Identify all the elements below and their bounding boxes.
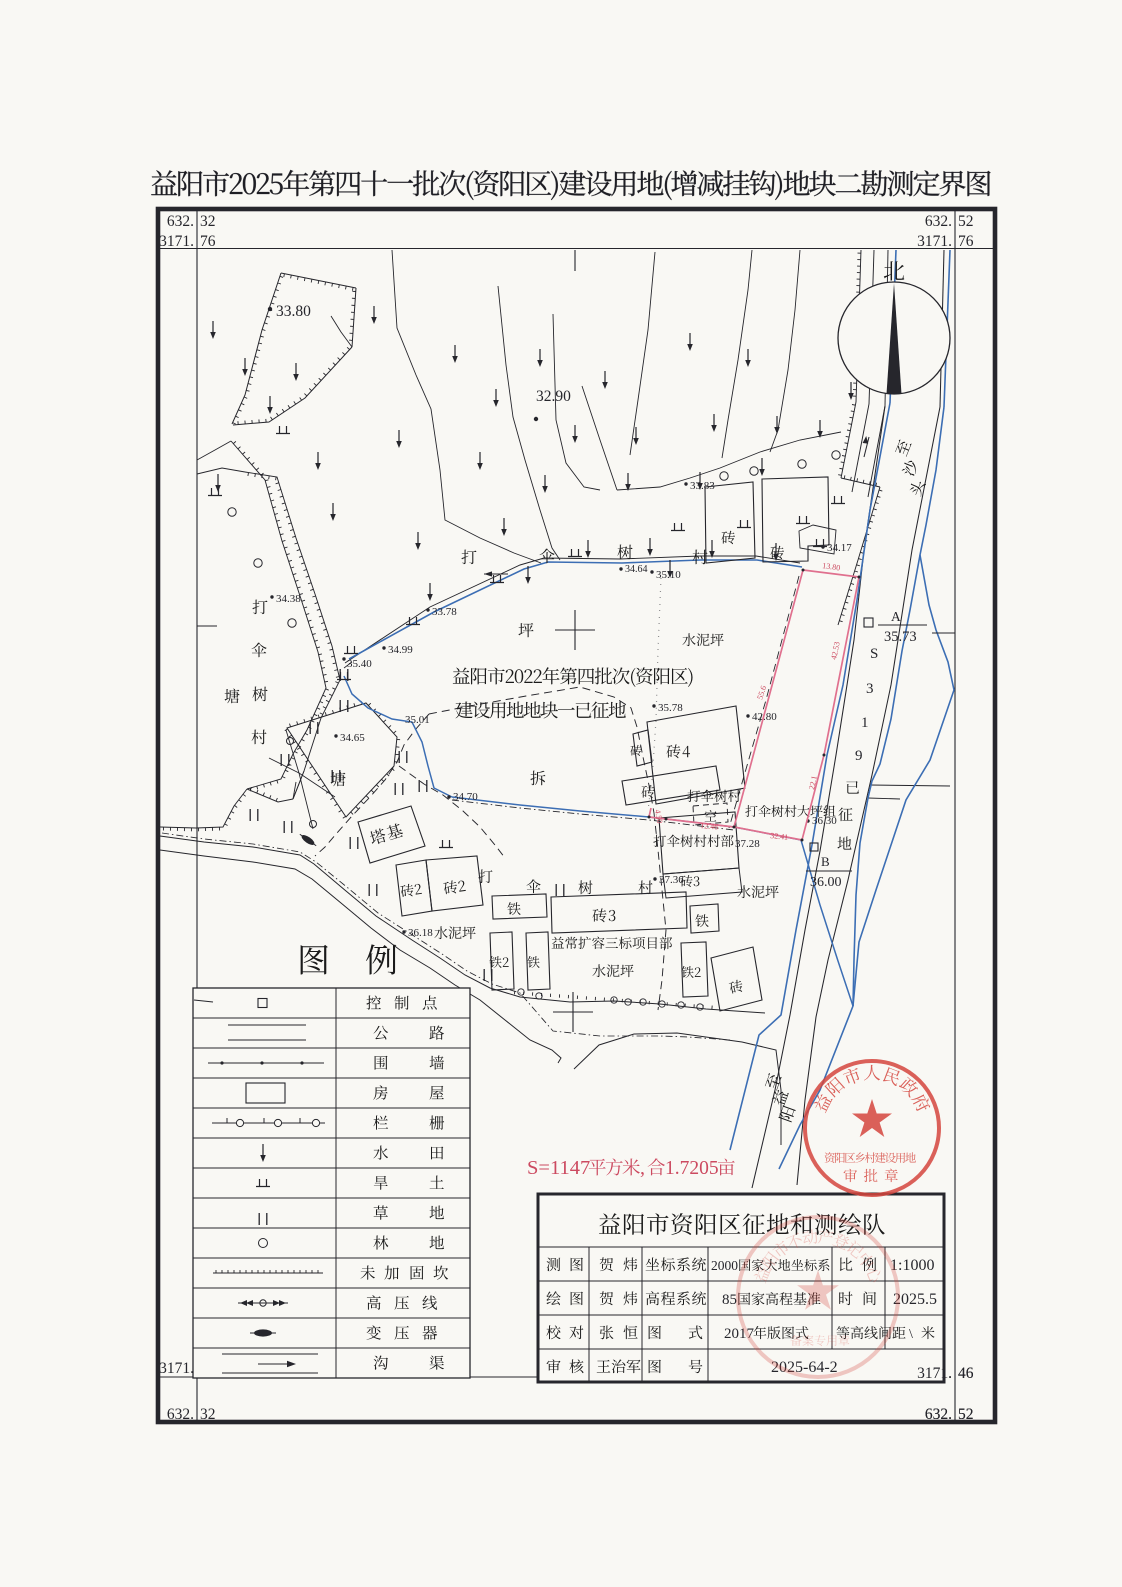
- svg-text:3171.: 3171.: [917, 1365, 952, 1382]
- svg-text:1: 1: [861, 715, 869, 731]
- svg-text:632.: 632.: [167, 213, 194, 230]
- svg-text:B: B: [821, 854, 830, 869]
- svg-text:35.40: 35.40: [347, 658, 372, 670]
- svg-text:33.78: 33.78: [432, 606, 457, 618]
- svg-text:46: 46: [958, 1365, 974, 1382]
- svg-text:3: 3: [866, 681, 874, 697]
- svg-text:34.70: 34.70: [453, 791, 478, 803]
- svg-text:632.: 632.: [925, 1406, 952, 1423]
- svg-text:34.38: 34.38: [276, 593, 301, 605]
- svg-text:35.10: 35.10: [656, 569, 681, 581]
- svg-text:32.90: 32.90: [536, 388, 571, 405]
- svg-text:A: A: [891, 609, 901, 624]
- svg-text:12.46: 12.46: [700, 821, 719, 832]
- svg-text:52: 52: [958, 1406, 974, 1423]
- svg-text:36.18: 36.18: [408, 927, 433, 939]
- svg-text:33.80: 33.80: [276, 303, 311, 320]
- svg-text:34.64: 34.64: [625, 564, 648, 575]
- svg-text:34.65: 34.65: [340, 732, 365, 744]
- svg-text:37.36: 37.36: [659, 874, 684, 886]
- svg-text:76: 76: [958, 233, 974, 250]
- svg-text:85: 85: [722, 1292, 737, 1308]
- svg-text:37.28: 37.28: [735, 838, 760, 850]
- svg-text:76: 76: [200, 233, 216, 250]
- svg-text:36.30: 36.30: [812, 815, 837, 827]
- svg-text:32: 32: [200, 213, 216, 230]
- svg-text:34.17: 34.17: [827, 542, 852, 554]
- svg-text:34.99: 34.99: [388, 644, 413, 656]
- svg-text:36.00: 36.00: [810, 875, 842, 890]
- svg-text:52: 52: [958, 213, 974, 230]
- svg-text:632.: 632.: [167, 1406, 194, 1423]
- svg-text:632.: 632.: [925, 213, 952, 230]
- svg-text:35.78: 35.78: [658, 702, 683, 714]
- svg-text:35.01: 35.01: [405, 714, 430, 726]
- svg-text:35.73: 35.73: [884, 629, 917, 645]
- svg-text:3171.: 3171.: [917, 233, 952, 250]
- svg-text:32.41: 32.41: [770, 831, 789, 842]
- svg-text:1:1000: 1:1000: [890, 1257, 934, 1274]
- svg-text:,: ,: [640, 1157, 645, 1179]
- svg-text:1.7205: 1.7205: [665, 1158, 719, 1179]
- svg-text:\: \: [909, 1327, 913, 1342]
- svg-text:2000: 2000: [711, 1258, 738, 1273]
- svg-text:3171.: 3171.: [159, 233, 194, 250]
- svg-text:33.83: 33.83: [690, 480, 715, 492]
- svg-text:3171.: 3171.: [159, 1360, 194, 1377]
- svg-text:9: 9: [855, 748, 863, 764]
- svg-text:32: 32: [200, 1406, 216, 1423]
- svg-text:S=1147: S=1147: [527, 1157, 590, 1179]
- svg-text:S: S: [870, 646, 878, 662]
